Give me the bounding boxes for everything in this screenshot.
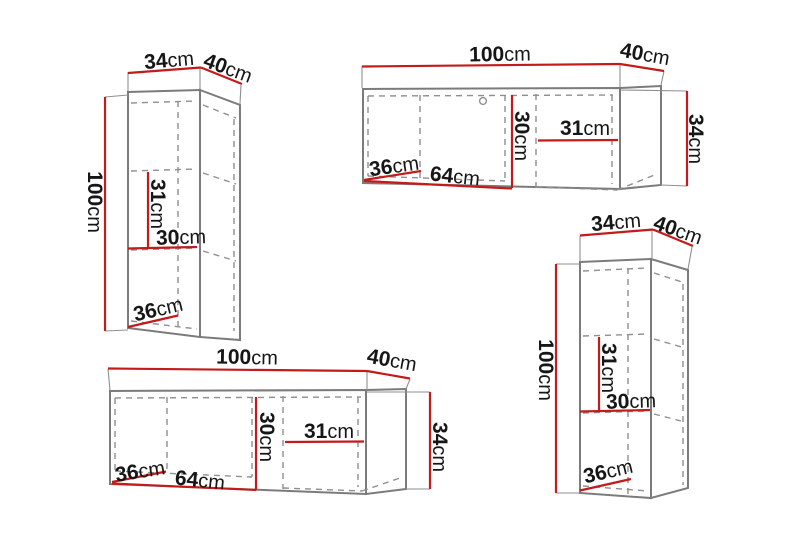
compartment-width-label: 31cm: [304, 420, 354, 443]
dimension-diagram: 34cm 40cm 100cm 31cm 30cm 36cm 100cm 40c…: [0, 0, 800, 533]
door-knob: [480, 98, 487, 105]
cabinet-tall-bottom-right: 34cm 40cm 100cm 31cm 30cm 36cm: [534, 209, 705, 498]
extension-line: [240, 85, 241, 104]
extension-line: [105, 330, 128, 331]
compartment-width-label: 31cm: [560, 117, 610, 140]
compartment-height-label: 30cm: [255, 412, 278, 462]
height-dimension-label: 34cm: [428, 422, 451, 472]
extension-line: [688, 247, 692, 269]
depth-dimension-label: 40cm: [650, 211, 705, 249]
extension-line: [406, 379, 410, 389]
cabinet-tall-top-left: 34cm 40cm 100cm 31cm 30cm 36cm: [83, 47, 255, 340]
compartment-height-label: 31cm: [146, 179, 169, 229]
height-dimension-label: 100cm: [83, 171, 106, 233]
diagram-svg: 34cm 40cm 100cm 31cm 30cm 36cm 100cm 40c…: [0, 0, 800, 533]
width-measure-line: [108, 369, 367, 372]
depth-dimension-label: 40cm: [200, 49, 255, 88]
extension-line: [661, 185, 687, 186]
compartment-width-label: 30cm: [156, 225, 207, 250]
height-dimension-label: 100cm: [534, 339, 557, 401]
compartment-height-label: 30cm: [510, 111, 533, 161]
compartment-height-label: 31cm: [597, 343, 620, 393]
width-dimension-label: 34cm: [590, 209, 642, 236]
width-dimension-label: 100cm: [469, 42, 531, 66]
cabinet-wide-bottom-left: 100cm 40cm 34cm 30cm 31cm 36cm 64cm: [108, 345, 451, 495]
cabinet-side-face: [366, 389, 406, 494]
extension-line: [661, 71, 664, 85]
compartment-width-measure-line: [538, 140, 618, 141]
width-dimension-label: 100cm: [216, 345, 278, 369]
compartment-width-label: 30cm: [606, 389, 657, 414]
cabinet-side-face: [200, 90, 240, 340]
height-dimension-label: 34cm: [684, 114, 707, 164]
cabinet-side-face: [620, 86, 661, 189]
cabinet-wide-top-right: 100cm 40cm 34cm 30cm 31cm 36cm 64cm: [362, 39, 707, 191]
extension-line: [105, 95, 128, 97]
extension-line: [108, 369, 110, 390]
width-dimension-label: 34cm: [143, 47, 195, 74]
